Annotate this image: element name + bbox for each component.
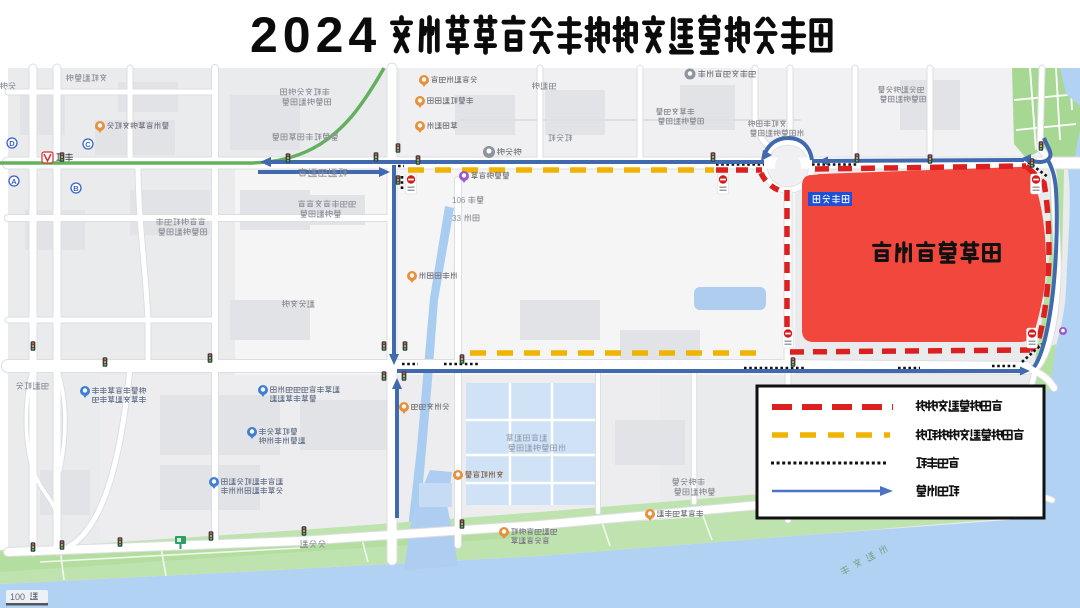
svg-text:33: 33 xyxy=(452,214,461,223)
svg-text:D: D xyxy=(9,139,15,148)
svg-text:C: C xyxy=(85,140,91,149)
svg-text:2024: 2024 xyxy=(250,7,381,63)
svg-text:B: B xyxy=(73,184,79,193)
svg-text:100: 100 xyxy=(10,592,25,602)
svg-text:A: A xyxy=(11,177,17,186)
svg-text:106: 106 xyxy=(452,196,466,205)
